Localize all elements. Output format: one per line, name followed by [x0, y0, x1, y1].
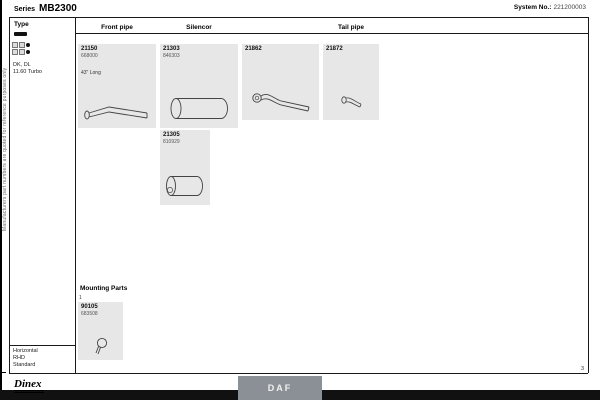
- curved-pipe-flange-icon: [248, 89, 314, 115]
- system-header: System No.:221200003: [514, 4, 586, 11]
- tail-pipe-icon: [339, 94, 365, 110]
- column-header-divider: [75, 33, 588, 34]
- fold-mark: [1, 372, 6, 373]
- part-box-tail-pipe[interactable]: 21872: [323, 44, 379, 120]
- axle-box-icon: [12, 42, 18, 48]
- part-box-silencer[interactable]: 21303 846303: [160, 44, 238, 128]
- part-box-front-pipe[interactable]: 21150 668000 43" Long: [78, 44, 156, 128]
- series-value: MB2300: [39, 3, 77, 14]
- part-number: 21150: [81, 46, 97, 52]
- drive-label: RHD: [13, 355, 38, 362]
- part-number: 21305: [163, 132, 180, 138]
- part-number: 21872: [326, 46, 343, 52]
- series-header: SeriesMB2300: [14, 3, 77, 14]
- part-box-mounting-clamp[interactable]: 90105 683508: [78, 302, 123, 360]
- part-note: 43" Long: [81, 70, 101, 76]
- zigzag-front-pipe-icon: [81, 103, 153, 123]
- series-label: Series: [14, 6, 35, 13]
- sidebar-footer-divider: [9, 345, 75, 346]
- model-line2: 11.60 Turbo: [13, 69, 42, 76]
- model-designation: DK, DL 11.60 Turbo: [13, 62, 42, 76]
- part-box-intermediate-pipe[interactable]: 21862: [242, 44, 319, 120]
- part-number: 21303: [163, 46, 180, 52]
- orientation-label: Horizontal: [13, 348, 38, 355]
- axle-box-icon: [12, 49, 18, 55]
- column-front-pipe: Front pipe: [78, 24, 156, 31]
- axle-wheel-icon: [26, 50, 30, 54]
- sidebar-footer: Horizontal RHD Standard: [13, 348, 38, 369]
- column-silencer: Silencor: [160, 24, 238, 31]
- right-frame-line: [588, 17, 589, 373]
- daf-make-button[interactable]: DAF: [238, 376, 322, 400]
- axle-config-icon: [12, 42, 30, 48]
- model-line1: DK, DL: [13, 62, 42, 69]
- axle-box-icon: [19, 42, 25, 48]
- part-ref: 668000: [81, 53, 98, 59]
- silencer-cylinder-icon: [163, 173, 207, 199]
- clamp-icon: [92, 336, 110, 356]
- standard-label: Standard: [13, 362, 38, 369]
- dinex-logo: Dinex: [14, 379, 44, 393]
- axle-box-icon: [19, 49, 25, 55]
- header-divider: [9, 17, 588, 18]
- system-value: 221200003: [553, 4, 586, 11]
- part-number: 90105: [81, 304, 98, 310]
- page-number: 3: [581, 366, 584, 372]
- part-box-silencer-2[interactable]: 21305 810929: [160, 130, 210, 205]
- silencer-cylinder-icon: [165, 95, 233, 122]
- content-bottom-divider: [9, 373, 588, 374]
- catalog-page: Manufacturers part numbers are quoted fo…: [0, 0, 600, 400]
- sidebar-divider: [75, 17, 76, 373]
- part-number: 21862: [245, 46, 262, 52]
- mounting-index: 1: [79, 295, 82, 301]
- mounting-parts-title: Mounting Parts: [80, 285, 127, 292]
- part-ref: 810929: [163, 139, 180, 145]
- chassis-bar-icon: [14, 32, 27, 36]
- left-frame-line: [9, 17, 10, 373]
- column-tail-pipe: Tail pipe: [323, 24, 379, 31]
- axle-config-icon: [12, 49, 30, 55]
- part-ref: 846303: [163, 53, 180, 59]
- system-label: System No.:: [514, 4, 552, 11]
- type-label: Type: [14, 21, 29, 28]
- part-ref: 683508: [81, 311, 98, 317]
- axle-wheel-icon: [26, 43, 30, 47]
